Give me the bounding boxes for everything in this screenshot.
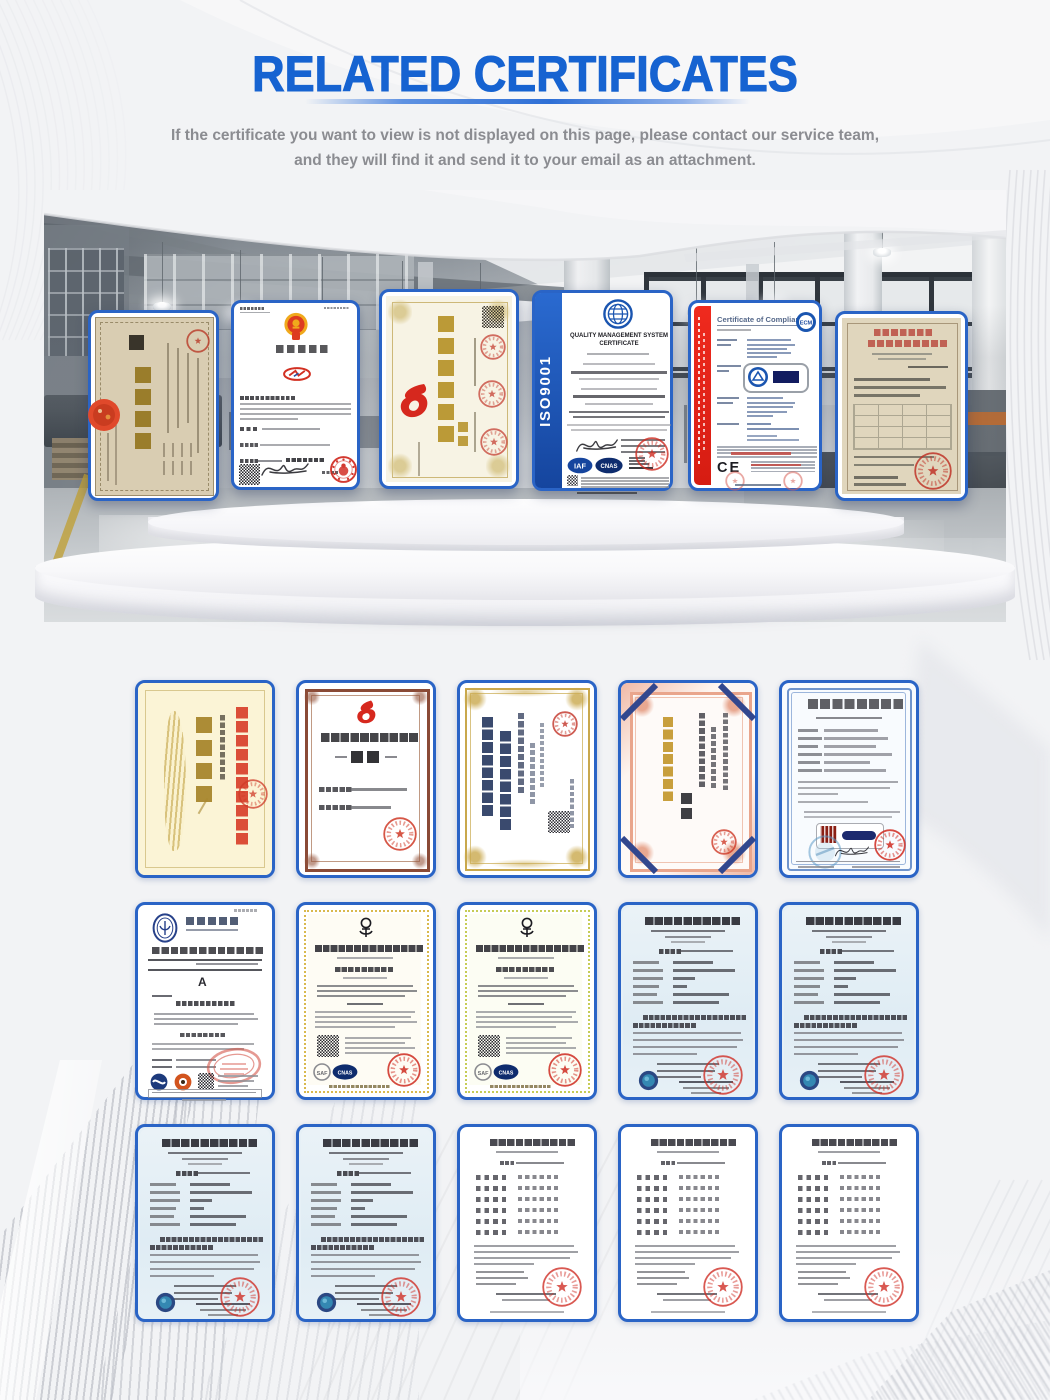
svg-text:CNAS: CNAS (499, 1070, 514, 1076)
svg-text:CNAS: CNAS (600, 464, 617, 470)
svg-text:ECM: ECM (800, 321, 813, 327)
svg-text:CNAS: CNAS (338, 1070, 353, 1076)
svg-text:IAF: IAF (574, 461, 586, 470)
svg-text:SAF: SAF (478, 1071, 489, 1077)
svg-text:SAF: SAF (317, 1071, 328, 1077)
